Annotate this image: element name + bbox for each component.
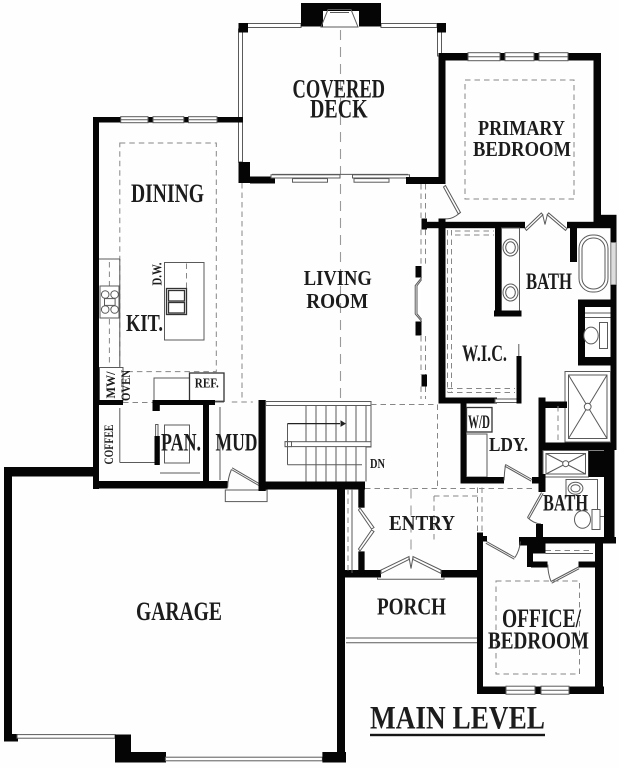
svg-text:ENTRY: ENTRY — [389, 511, 455, 535]
svg-text:ROOM: ROOM — [306, 289, 368, 313]
svg-text:D.W.: D.W. — [150, 263, 165, 286]
svg-text:MW/: MW/ — [104, 371, 118, 399]
svg-text:PORCH: PORCH — [377, 595, 446, 621]
svg-text:COFFEE: COFFEE — [101, 425, 116, 465]
svg-text:BEDROOM: BEDROOM — [488, 627, 589, 654]
svg-text:BATH: BATH — [526, 269, 572, 295]
svg-text:BEDROOM: BEDROOM — [473, 137, 571, 161]
svg-text:MUD: MUD — [216, 428, 258, 457]
svg-text:GARAGE: GARAGE — [136, 596, 222, 626]
svg-text:MAIN LEVEL: MAIN LEVEL — [370, 701, 545, 737]
svg-text:DINING: DINING — [131, 178, 204, 208]
svg-text:W.I.C.: W.I.C. — [462, 341, 507, 367]
svg-text:PAN.: PAN. — [161, 428, 201, 457]
svg-text:OVEN: OVEN — [119, 370, 133, 401]
svg-text:W/D: W/D — [468, 413, 490, 433]
svg-text:REF.: REF. — [195, 376, 219, 391]
svg-text:KIT.: KIT. — [126, 311, 163, 337]
svg-text:LDY.: LDY. — [489, 434, 528, 456]
svg-text:LIVING: LIVING — [304, 266, 372, 290]
svg-text:DN: DN — [370, 456, 385, 471]
svg-text:DECK: DECK — [310, 95, 368, 124]
